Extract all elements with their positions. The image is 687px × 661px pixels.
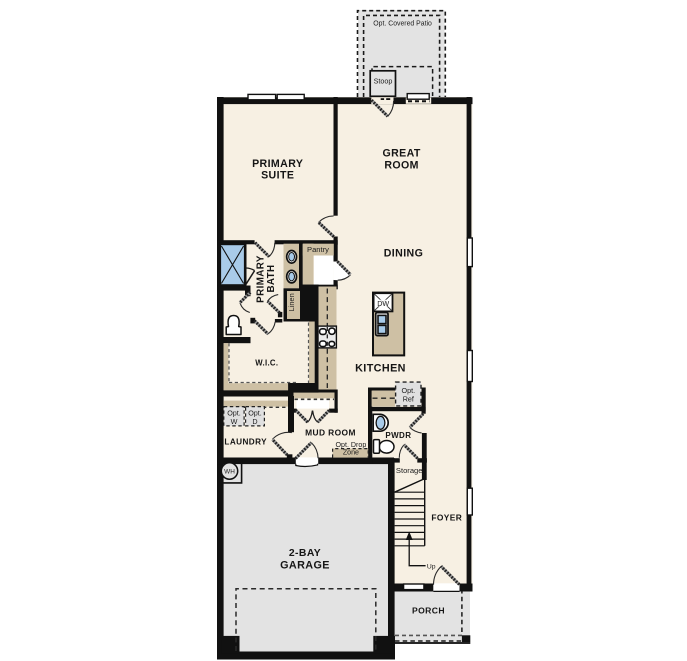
svg-text:KITCHEN: KITCHEN <box>355 362 406 374</box>
svg-text:PRIMARY: PRIMARY <box>255 255 266 303</box>
svg-text:DW: DW <box>377 299 389 308</box>
svg-text:D: D <box>252 417 257 426</box>
svg-text:BATH: BATH <box>266 264 277 292</box>
svg-text:Pantry: Pantry <box>307 245 329 254</box>
svg-text:LAUNDRY: LAUNDRY <box>224 437 267 446</box>
svg-text:Linen: Linen <box>287 293 296 311</box>
svg-text:GREAT: GREAT <box>382 147 420 159</box>
svg-text:DINING: DINING <box>384 248 423 260</box>
svg-text:WH: WH <box>224 468 235 475</box>
svg-text:MUD ROOM: MUD ROOM <box>305 428 356 438</box>
svg-text:Stoop: Stoop <box>374 77 393 86</box>
svg-text:2-BAY: 2-BAY <box>289 548 321 559</box>
svg-text:PORCH: PORCH <box>412 605 445 615</box>
svg-text:Opt. Drop: Opt. Drop <box>336 441 367 449</box>
svg-text:PRIMARY: PRIMARY <box>252 158 303 170</box>
svg-text:GARAGE: GARAGE <box>280 560 330 572</box>
svg-text:Opt. Covered Patio: Opt. Covered Patio <box>373 20 432 27</box>
svg-text:W: W <box>231 417 238 426</box>
svg-text:Storage: Storage <box>396 466 423 475</box>
svg-text:ROOM: ROOM <box>384 159 419 171</box>
svg-text:Up: Up <box>427 563 436 570</box>
svg-text:Zone: Zone <box>343 449 359 457</box>
svg-text:Opt.: Opt. <box>402 386 416 395</box>
svg-text:SUITE: SUITE <box>261 170 294 182</box>
svg-text:W.I.C.: W.I.C. <box>255 358 278 367</box>
svg-text:FOYER: FOYER <box>431 512 462 522</box>
svg-text:PWDR: PWDR <box>385 431 411 440</box>
svg-text:Ref: Ref <box>403 395 414 404</box>
